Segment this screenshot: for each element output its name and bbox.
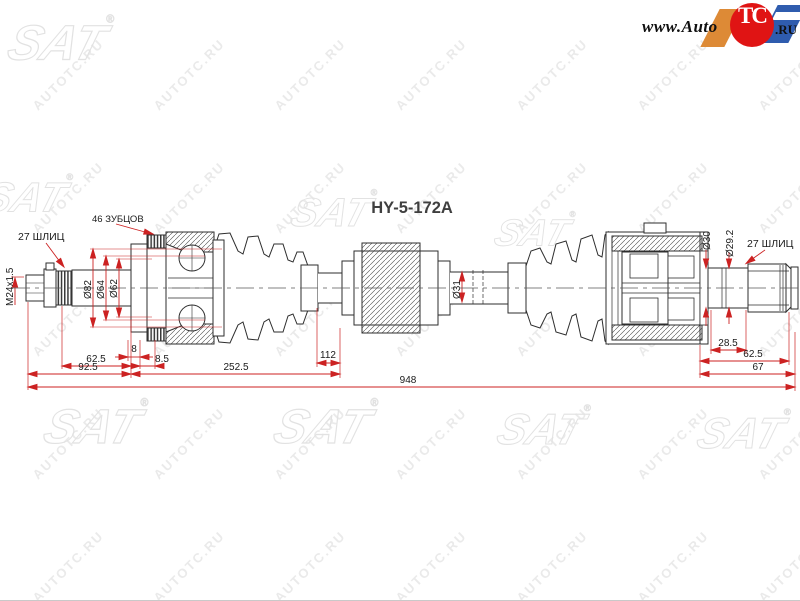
- threaded-stub-end: [26, 263, 56, 307]
- dim-8: 8: [131, 344, 137, 355]
- label-d82: Ø82: [83, 280, 94, 299]
- part-number: HY-5-172A: [371, 199, 453, 217]
- axle-technical-drawing: HY-5-172A 27 ШЛИЦ 46 ЗУБЦОВ 27 ШЛИЦ M24x…: [0, 0, 800, 600]
- label-d29-2: Ø29.2: [725, 229, 736, 257]
- logo-ru-text: .RU: [775, 22, 797, 38]
- logo-www-text: www.Auto: [642, 17, 718, 37]
- callout-spline-left: 27 ШЛИЦ: [18, 231, 65, 243]
- catalog-drawing-page: AUTOTC.RUAUTOTC.RUAUTOTC.RUAUTOTC.RUAUTO…: [0, 0, 800, 601]
- dim-62-5-right: 62.5: [743, 349, 763, 360]
- logo-blue-flag-stripe: [772, 12, 800, 20]
- dim-28-5: 28.5: [718, 338, 738, 349]
- dim-8-line: [115, 354, 153, 359]
- callout-spline-right: 27 ШЛИЦ: [747, 238, 794, 250]
- dim-92-5: 92.5: [78, 362, 98, 373]
- callout-teeth-count: 46 ЗУБЦОВ: [92, 214, 144, 225]
- dim-948: 948: [400, 375, 417, 386]
- dim-112-line: [317, 360, 340, 365]
- label-d64: Ø64: [96, 280, 107, 299]
- dim-8-5: 8.5: [155, 354, 169, 365]
- dim-252-5: 252.5: [223, 362, 248, 373]
- logo-tc-circle: TC: [730, 3, 774, 47]
- inner-cv-joint-housing: [606, 223, 708, 344]
- label-d31: Ø31: [452, 280, 463, 299]
- leader-spline-right: [746, 250, 765, 264]
- label-d30: Ø30: [702, 231, 713, 250]
- autotc-site-logo: TC www.Auto .RU: [598, 2, 800, 54]
- callout-thread-spec: M24x1.5: [5, 267, 16, 306]
- dim-67: 67: [752, 362, 764, 373]
- dim-67-line: [700, 371, 795, 376]
- label-d62: Ø62: [109, 279, 120, 298]
- leader-teeth: [116, 224, 153, 234]
- dim-112: 112: [320, 350, 336, 361]
